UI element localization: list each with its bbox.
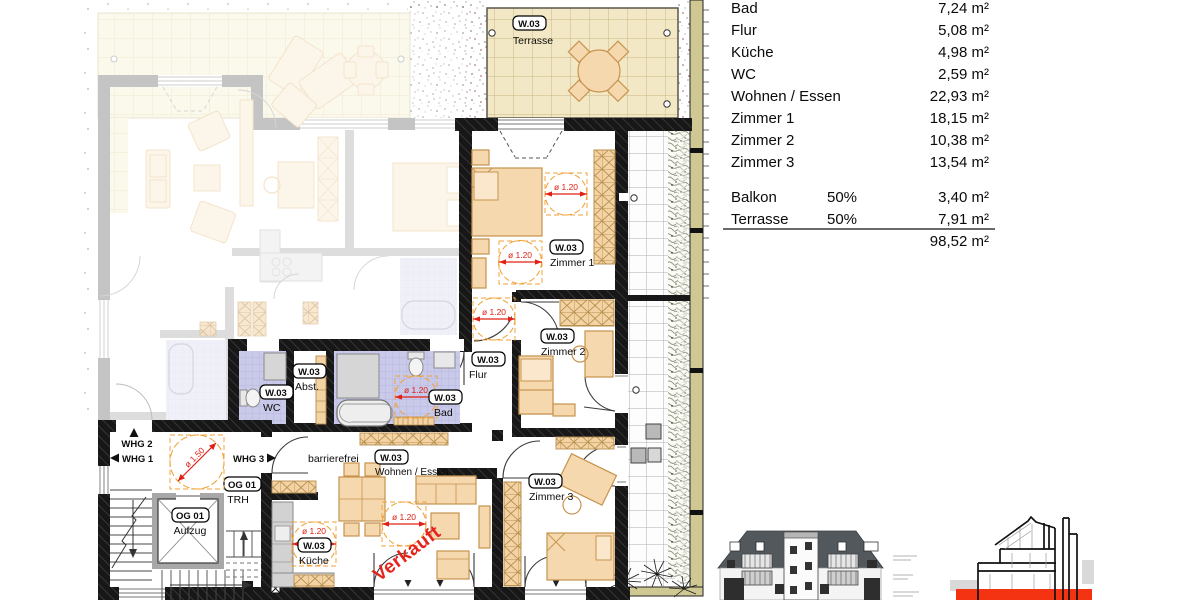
- svg-text:Aufzug: Aufzug: [174, 525, 207, 537]
- svg-text:50%: 50%: [827, 211, 857, 228]
- svg-text:Küche: Küche: [299, 555, 329, 567]
- svg-text:3,40 m²: 3,40 m²: [938, 189, 989, 206]
- svg-text:Flur: Flur: [469, 369, 488, 381]
- svg-text:Wohnen / Essen: Wohnen / Essen: [375, 467, 448, 478]
- svg-text:W.03: W.03: [518, 19, 540, 30]
- svg-text:W.03: W.03: [546, 332, 568, 343]
- svg-text:W.03: W.03: [534, 477, 556, 488]
- svg-text:2,59 m²: 2,59 m²: [938, 66, 989, 83]
- svg-text:7,91 m²: 7,91 m²: [938, 211, 989, 228]
- svg-text:Zimmer 2: Zimmer 2: [541, 346, 585, 358]
- svg-text:TRH: TRH: [227, 494, 249, 506]
- svg-text:W.03: W.03: [555, 243, 577, 254]
- svg-text:ø 1.20: ø 1.20: [302, 526, 326, 536]
- svg-text:ø 1.20: ø 1.20: [482, 307, 506, 317]
- svg-text:50%: 50%: [827, 189, 857, 206]
- svg-text:W.03: W.03: [380, 453, 402, 464]
- svg-text:WHG 3: WHG 3: [233, 454, 264, 465]
- svg-text:Zimmer 3: Zimmer 3: [731, 154, 794, 171]
- svg-text:18,15 m²: 18,15 m²: [930, 110, 989, 127]
- svg-text:Zimmer 1: Zimmer 1: [731, 110, 794, 127]
- svg-text:Bad: Bad: [434, 407, 453, 419]
- svg-text:Wohnen / Essen: Wohnen / Essen: [731, 88, 841, 105]
- svg-text:OG 01: OG 01: [176, 511, 205, 522]
- svg-text:Zimmer 1: Zimmer 1: [550, 257, 594, 269]
- svg-text:ø 1.20: ø 1.20: [554, 182, 578, 192]
- svg-text:Zimmer 2: Zimmer 2: [731, 132, 794, 149]
- svg-text:10,38 m²: 10,38 m²: [930, 132, 989, 149]
- svg-text:22,93 m²: 22,93 m²: [930, 88, 989, 105]
- svg-text:Balkon: Balkon: [731, 189, 777, 206]
- svg-text:WC: WC: [263, 402, 281, 414]
- svg-text:5,08 m²: 5,08 m²: [938, 22, 989, 39]
- svg-text:Terrasse: Terrasse: [513, 35, 553, 47]
- svg-text:ø 1.20: ø 1.20: [392, 512, 416, 522]
- svg-text:13,54 m²: 13,54 m²: [930, 154, 989, 171]
- svg-text:barrierefrei: barrierefrei: [308, 453, 359, 465]
- svg-text:Flur: Flur: [731, 22, 757, 39]
- svg-text:4,98 m²: 4,98 m²: [938, 44, 989, 61]
- svg-text:W.03: W.03: [265, 388, 287, 399]
- svg-text:ø 1.20: ø 1.20: [508, 250, 532, 260]
- svg-text:7,24 m²: 7,24 m²: [938, 0, 989, 17]
- svg-text:ø 1.20: ø 1.20: [404, 385, 428, 395]
- svg-text:Bad: Bad: [731, 0, 758, 17]
- svg-text:WHG 1: WHG 1: [122, 454, 154, 465]
- svg-text:Küche: Küche: [731, 44, 774, 61]
- svg-text:WC: WC: [731, 66, 756, 83]
- svg-text:Zimmer 3: Zimmer 3: [529, 491, 573, 503]
- svg-text:98,52 m²: 98,52 m²: [930, 233, 989, 250]
- svg-text:OG 01: OG 01: [228, 480, 257, 491]
- svg-text:Abst.: Abst.: [295, 381, 319, 393]
- svg-text:W.03: W.03: [477, 355, 499, 366]
- svg-text:WHG 2: WHG 2: [121, 439, 152, 450]
- svg-text:W.03: W.03: [434, 393, 456, 404]
- svg-text:W.03: W.03: [303, 541, 325, 552]
- svg-text:Terrasse: Terrasse: [731, 211, 789, 228]
- svg-text:W.03: W.03: [298, 367, 320, 378]
